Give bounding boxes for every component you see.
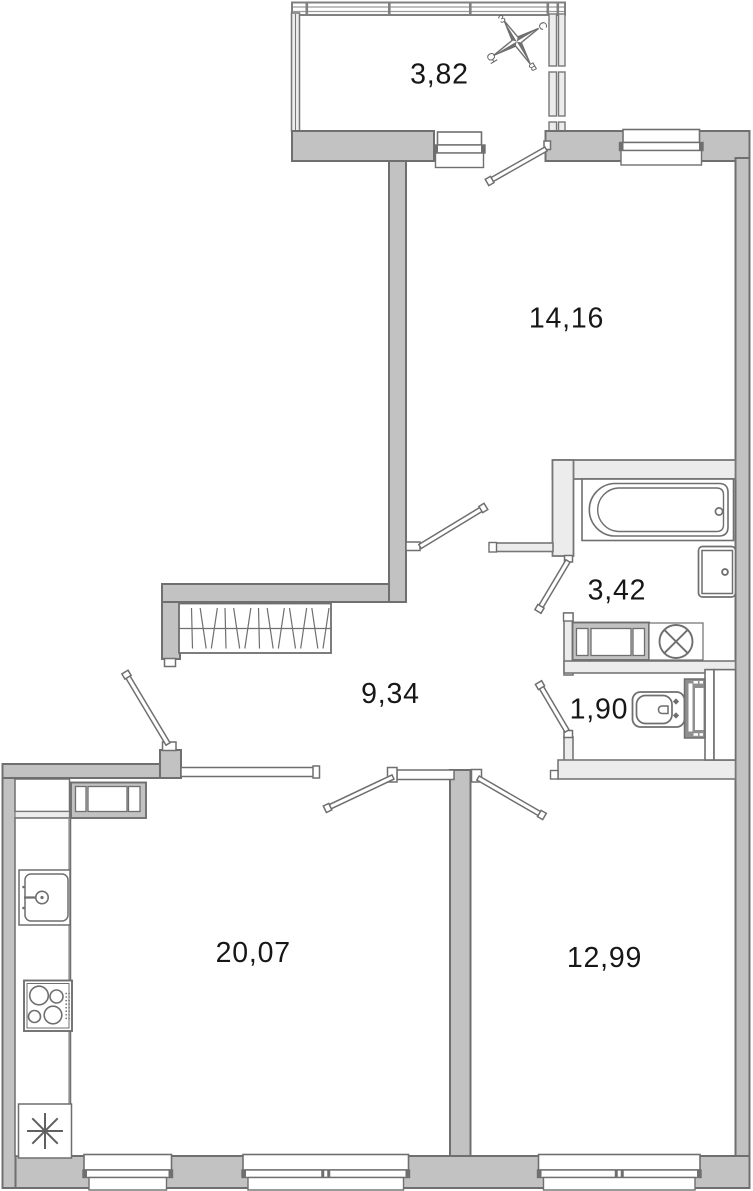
svg-text:12,99: 12,99 [567, 942, 642, 974]
svg-text:3,82: 3,82 [410, 59, 469, 91]
svg-text:3,42: 3,42 [588, 575, 647, 607]
svg-text:14,16: 14,16 [529, 303, 604, 335]
svg-text:1,90: 1,90 [570, 694, 629, 726]
svg-text:20,07: 20,07 [216, 937, 291, 969]
svg-text:9,34: 9,34 [361, 678, 420, 710]
